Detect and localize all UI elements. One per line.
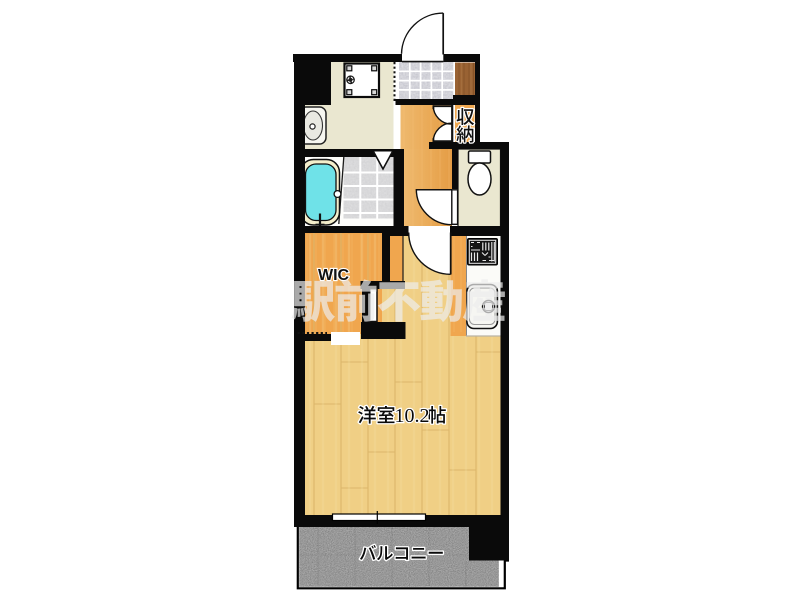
svg-text:10.2: 10.2 xyxy=(395,405,430,427)
